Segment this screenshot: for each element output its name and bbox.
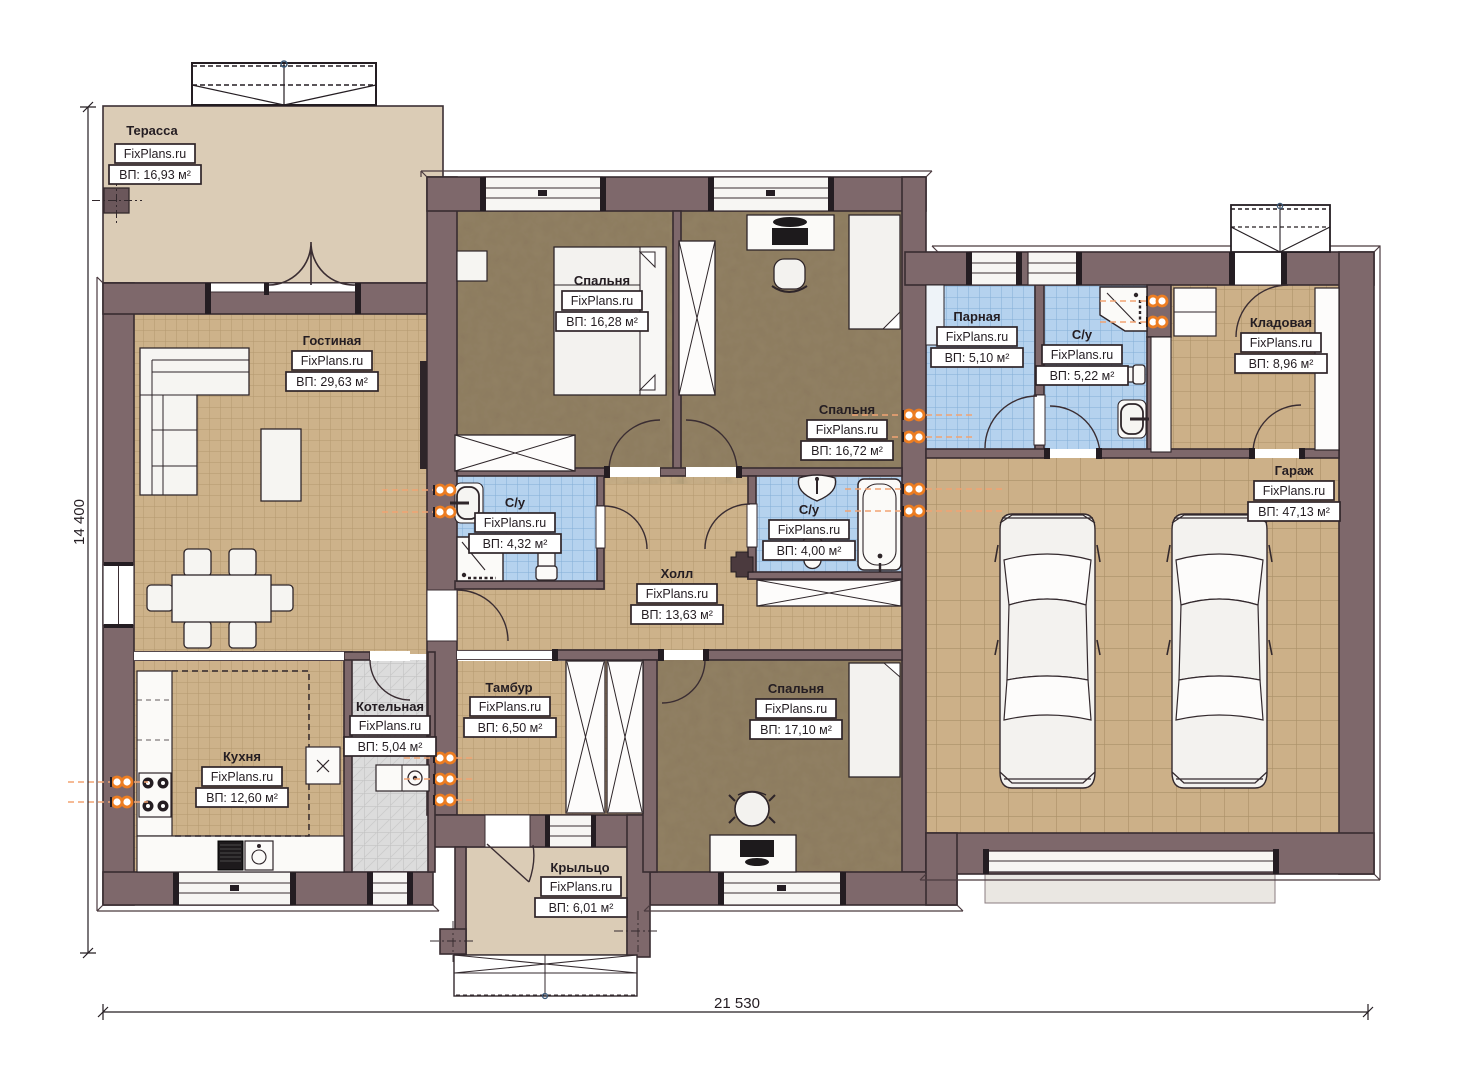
svg-text:FixPlans.ru: FixPlans.ru xyxy=(1250,336,1313,350)
svg-text:Кухня: Кухня xyxy=(223,749,261,764)
svg-text:14 400: 14 400 xyxy=(71,499,88,545)
svg-text:ВП: 6,50 м²: ВП: 6,50 м² xyxy=(478,721,543,735)
svg-text:ВП: 5,22 м²: ВП: 5,22 м² xyxy=(1050,369,1115,383)
svg-text:Гараж: Гараж xyxy=(1275,463,1315,478)
svg-text:ВП: 5,10 м²: ВП: 5,10 м² xyxy=(945,351,1010,365)
svg-text:ВП: 12,60 м²: ВП: 12,60 м² xyxy=(206,791,278,805)
svg-text:С/у: С/у xyxy=(1072,327,1093,342)
svg-text:FixPlans.ru: FixPlans.ru xyxy=(550,880,613,894)
svg-text:FixPlans.ru: FixPlans.ru xyxy=(765,702,828,716)
svg-text:ВП: 16,28 м²: ВП: 16,28 м² xyxy=(566,315,638,329)
svg-text:Спальня: Спальня xyxy=(574,273,630,288)
svg-text:FixPlans.ru: FixPlans.ru xyxy=(778,523,841,537)
svg-text:Гостиная: Гостиная xyxy=(303,333,362,348)
svg-text:ВП: 8,96 м²: ВП: 8,96 м² xyxy=(1249,357,1314,371)
svg-text:FixPlans.ru: FixPlans.ru xyxy=(946,330,1009,344)
svg-text:ВП: 6,01 м²: ВП: 6,01 м² xyxy=(549,901,614,915)
svg-text:Парная: Парная xyxy=(953,309,1000,324)
svg-text:FixPlans.ru: FixPlans.ru xyxy=(211,770,274,784)
svg-text:Терасса: Терасса xyxy=(126,123,178,138)
svg-text:ВП: 47,13 м²: ВП: 47,13 м² xyxy=(1258,505,1330,519)
svg-text:Холл: Холл xyxy=(661,566,694,581)
svg-text:21 530: 21 530 xyxy=(714,995,760,1012)
svg-text:FixPlans.ru: FixPlans.ru xyxy=(301,354,364,368)
svg-text:FixPlans.ru: FixPlans.ru xyxy=(1263,484,1326,498)
svg-text:ВП: 13,63 м²: ВП: 13,63 м² xyxy=(641,608,713,622)
svg-text:FixPlans.ru: FixPlans.ru xyxy=(1051,348,1114,362)
svg-text:Спальня: Спальня xyxy=(819,402,875,417)
svg-text:ВП: 16,72 м²: ВП: 16,72 м² xyxy=(811,444,883,458)
svg-text:FixPlans.ru: FixPlans.ru xyxy=(124,147,187,161)
svg-text:FixPlans.ru: FixPlans.ru xyxy=(479,700,542,714)
svg-text:ВП: 17,10 м²: ВП: 17,10 м² xyxy=(760,723,832,737)
svg-text:Котельная: Котельная xyxy=(356,699,424,714)
svg-text:ВП: 29,63 м²: ВП: 29,63 м² xyxy=(296,375,368,389)
svg-text:Крыльцо: Крыльцо xyxy=(550,860,609,875)
svg-text:С/у: С/у xyxy=(799,502,820,517)
svg-text:FixPlans.ru: FixPlans.ru xyxy=(359,719,422,733)
svg-text:ВП: 16,93 м²: ВП: 16,93 м² xyxy=(119,168,191,182)
svg-text:FixPlans.ru: FixPlans.ru xyxy=(646,587,709,601)
svg-text:ВП: 5,04 м²: ВП: 5,04 м² xyxy=(358,740,423,754)
svg-text:FixPlans.ru: FixPlans.ru xyxy=(571,294,634,308)
svg-text:ВП: 4,32 м²: ВП: 4,32 м² xyxy=(483,537,548,551)
svg-text:Тамбур: Тамбур xyxy=(485,680,532,695)
svg-text:С/у: С/у xyxy=(505,495,526,510)
svg-text:ВП: 4,00 м²: ВП: 4,00 м² xyxy=(777,544,842,558)
svg-text:Спальня: Спальня xyxy=(768,681,824,696)
svg-text:FixPlans.ru: FixPlans.ru xyxy=(816,423,879,437)
svg-text:Кладовая: Кладовая xyxy=(1250,315,1312,330)
svg-text:FixPlans.ru: FixPlans.ru xyxy=(484,516,547,530)
